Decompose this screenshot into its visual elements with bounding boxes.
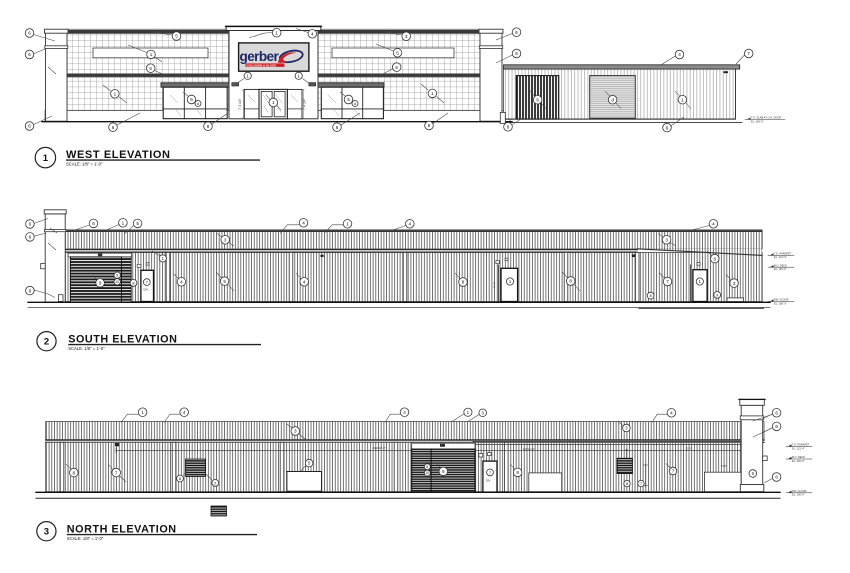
svg-text:6: 6 bbox=[92, 221, 95, 226]
svg-text:EL: 115'-0": EL: 115'-0" bbox=[774, 267, 787, 271]
svg-text:SCALE: 1/8" = 1'-0": SCALE: 1/8" = 1'-0" bbox=[68, 346, 105, 351]
svg-text:6: 6 bbox=[775, 424, 778, 429]
svg-text:SOUTH ELEVATION: SOUTH ELEVATION bbox=[68, 334, 177, 346]
svg-text:SCALE: 1/8" = 1'-0": SCALE: 1/8" = 1'-0" bbox=[67, 536, 104, 541]
svg-text:3: 3 bbox=[294, 429, 297, 434]
svg-text:EL: 121'-4": EL: 121'-4" bbox=[792, 446, 805, 450]
svg-text:COLLISION & GLASS: COLLISION & GLASS bbox=[247, 63, 276, 67]
svg-text:9: 9 bbox=[99, 281, 102, 286]
svg-text:6: 6 bbox=[112, 125, 115, 130]
svg-text:7: 7 bbox=[666, 279, 669, 284]
svg-text:5: 5 bbox=[223, 279, 226, 284]
svg-text:7'-4 1/4": 7'-4 1/4" bbox=[303, 98, 307, 110]
svg-text:5: 5 bbox=[116, 274, 118, 278]
svg-text:7: 7 bbox=[640, 482, 642, 486]
svg-text:SCALE: 1/8" = 1'-0": SCALE: 1/8" = 1'-0" bbox=[66, 161, 103, 166]
svg-text:5: 5 bbox=[396, 50, 399, 55]
svg-text:5'x5': 5'x5' bbox=[721, 464, 727, 468]
svg-text:8: 8 bbox=[462, 280, 465, 285]
svg-text:4: 4 bbox=[180, 279, 183, 284]
svg-text:1: 1 bbox=[346, 221, 349, 226]
svg-text:1: 1 bbox=[43, 153, 49, 164]
svg-text:3: 3 bbox=[224, 237, 227, 242]
svg-text:1: 1 bbox=[150, 52, 153, 57]
svg-text:EL: 121'-4": EL: 121'-4" bbox=[774, 255, 787, 259]
svg-text:1: 1 bbox=[431, 91, 434, 96]
svg-text:B.O. DECK: B.O. DECK bbox=[792, 455, 805, 459]
svg-text:DH=10'-0": DH=10'-0" bbox=[373, 446, 386, 450]
svg-text:6: 6 bbox=[775, 475, 778, 480]
svg-text:6: 6 bbox=[775, 410, 778, 415]
svg-text:6: 6 bbox=[28, 31, 31, 36]
svg-text:6: 6 bbox=[29, 235, 32, 240]
svg-text:8: 8 bbox=[426, 465, 428, 469]
svg-text:T.O. SLAB AT O.H. DOOR: T.O. SLAB AT O.H. DOOR bbox=[751, 116, 781, 120]
svg-text:EL: 100'-0": EL: 100'-0" bbox=[792, 493, 805, 497]
svg-text:5'-0": 5'-0" bbox=[686, 447, 692, 451]
svg-text:1: 1 bbox=[122, 220, 125, 225]
svg-text:FIN. FLOOR: FIN. FLOOR bbox=[774, 298, 789, 302]
svg-text:T.O. PARAPET: T.O. PARAPET bbox=[774, 252, 792, 256]
svg-text:8: 8 bbox=[626, 482, 628, 486]
svg-text:4: 4 bbox=[409, 221, 412, 226]
svg-text:8: 8 bbox=[516, 470, 519, 475]
svg-text:2: 2 bbox=[44, 337, 49, 348]
svg-text:6: 6 bbox=[507, 124, 510, 129]
svg-text:DN: DN bbox=[486, 479, 490, 483]
svg-text:10: 10 bbox=[115, 280, 119, 284]
svg-text:3: 3 bbox=[665, 237, 668, 242]
svg-text:7: 7 bbox=[747, 51, 750, 56]
svg-text:1: 1 bbox=[681, 97, 684, 102]
svg-text:6: 6 bbox=[515, 30, 518, 35]
svg-text:7: 7 bbox=[115, 470, 118, 475]
svg-text:6: 6 bbox=[149, 66, 152, 71]
svg-text:7'-4 1/4": 7'-4 1/4" bbox=[238, 98, 242, 110]
svg-text:1: 1 bbox=[141, 410, 144, 415]
svg-text:6: 6 bbox=[28, 124, 31, 129]
svg-text:8: 8 bbox=[207, 124, 210, 129]
svg-text:4: 4 bbox=[183, 410, 186, 415]
svg-text:6: 6 bbox=[536, 97, 539, 102]
svg-text:1: 1 bbox=[275, 30, 278, 35]
svg-text:gerber: gerber bbox=[240, 49, 280, 64]
svg-text:4: 4 bbox=[302, 220, 305, 225]
svg-text:5: 5 bbox=[190, 97, 193, 102]
svg-text:8: 8 bbox=[73, 470, 76, 475]
svg-text:9: 9 bbox=[442, 469, 445, 474]
svg-text:1: 1 bbox=[114, 91, 117, 96]
svg-text:d: d bbox=[611, 97, 614, 102]
svg-text:6: 6 bbox=[714, 256, 717, 261]
svg-text:3: 3 bbox=[405, 34, 408, 39]
svg-text:5: 5 bbox=[347, 97, 350, 102]
svg-text:4: 4 bbox=[678, 52, 681, 57]
svg-text:5: 5 bbox=[175, 34, 178, 39]
svg-text:6: 6 bbox=[29, 288, 32, 293]
svg-text:6: 6 bbox=[336, 125, 339, 130]
svg-text:3: 3 bbox=[44, 527, 49, 538]
svg-text:WEST ELEVATION: WEST ELEVATION bbox=[66, 149, 171, 161]
svg-text:1/2"x1'-0": 1/2"x1'-0" bbox=[523, 447, 535, 451]
svg-text:d: d bbox=[354, 102, 356, 106]
svg-text:DN: DN bbox=[144, 288, 148, 292]
svg-text:B.O. DECK: B.O. DECK bbox=[774, 263, 787, 267]
svg-text:EL: 100'-0": EL: 100'-0" bbox=[751, 119, 764, 123]
svg-text:4: 4 bbox=[311, 31, 314, 36]
svg-text:1: 1 bbox=[272, 100, 275, 105]
svg-text:T.O. PARAPET: T.O. PARAPET bbox=[792, 443, 810, 447]
svg-text:10: 10 bbox=[426, 471, 430, 475]
svg-text:4: 4 bbox=[403, 410, 406, 415]
svg-text:8: 8 bbox=[569, 279, 572, 284]
svg-text:8: 8 bbox=[515, 51, 518, 56]
svg-text:d: d bbox=[197, 102, 199, 106]
svg-text:6: 6 bbox=[28, 52, 31, 57]
svg-text:7'-4": 7'-4" bbox=[493, 282, 497, 288]
svg-text:6: 6 bbox=[29, 222, 32, 227]
svg-text:4: 4 bbox=[712, 221, 715, 226]
svg-text:EL: 100'-0": EL: 100'-0" bbox=[774, 301, 787, 305]
svg-text:3: 3 bbox=[733, 281, 736, 286]
svg-text:6: 6 bbox=[395, 65, 398, 70]
svg-text:5: 5 bbox=[136, 221, 139, 226]
svg-text:4: 4 bbox=[670, 410, 673, 415]
svg-text:NORTH ELEVATION: NORTH ELEVATION bbox=[67, 524, 177, 536]
svg-text:6: 6 bbox=[428, 123, 431, 128]
svg-text:6: 6 bbox=[666, 125, 669, 130]
svg-text:EL: 115'-0": EL: 115'-0" bbox=[792, 459, 805, 463]
svg-text:FIN. FLOOR: FIN. FLOOR bbox=[792, 489, 807, 493]
svg-text:4: 4 bbox=[303, 279, 306, 284]
